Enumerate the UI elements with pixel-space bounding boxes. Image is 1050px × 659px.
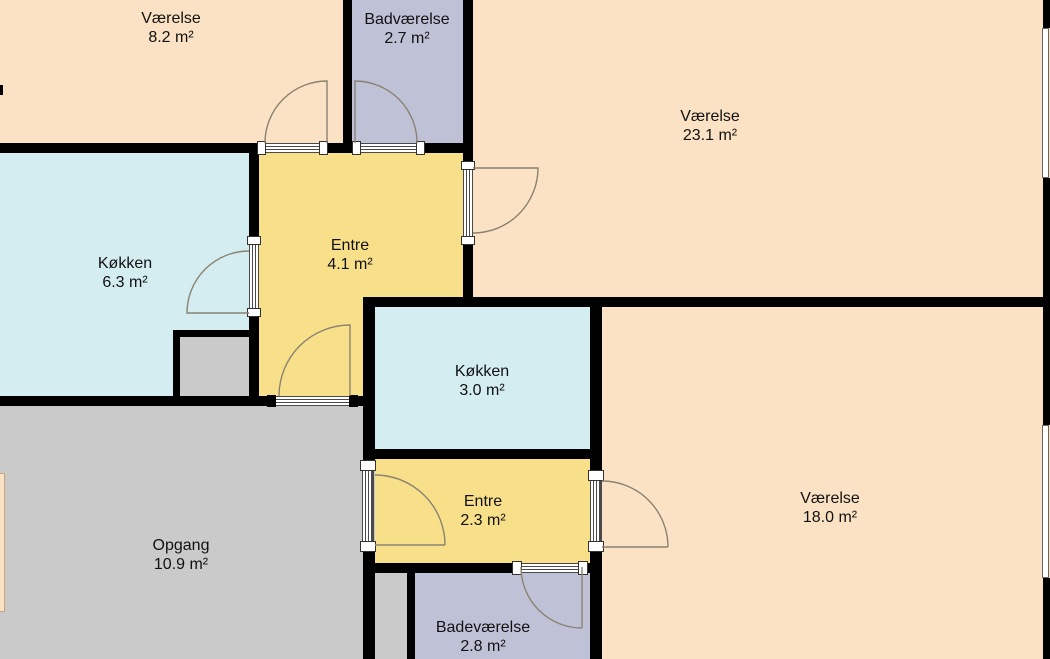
room-label-entre-4-1: Entre 4.1 m²: [327, 236, 372, 274]
door-jamb: [588, 470, 604, 481]
door-jamb: [578, 561, 588, 575]
window: [1042, 425, 1049, 578]
room-vaerelse-23-1: [463, 0, 1050, 307]
room-name: Badeværelse: [436, 618, 530, 637]
room-area: 3.0 m²: [455, 381, 509, 400]
door-jamb: [352, 141, 361, 155]
wall: [590, 550, 602, 659]
door-jamb: [247, 308, 261, 317]
room-label-entre-2-3: Entre 2.3 m²: [460, 492, 505, 530]
room-name: Entre: [460, 492, 505, 511]
room-area: 23.1 m²: [680, 126, 740, 145]
wall: [1043, 578, 1050, 659]
door-threshold: [590, 472, 602, 550]
room-area: 6.3 m²: [98, 273, 152, 292]
room-name: Værelse: [141, 9, 201, 28]
wall: [590, 297, 602, 472]
wall: [1043, 0, 1050, 28]
wall: [249, 143, 259, 238]
room-opgang: [0, 396, 375, 659]
wall: [407, 573, 415, 659]
door-threshold: [249, 238, 259, 315]
door-threshold: [258, 143, 327, 153]
door-jamb: [247, 236, 261, 245]
room-entre-4-1-lower: [249, 297, 375, 406]
room-label-vaerelse-8-2: Værelse 8.2 m²: [141, 9, 201, 47]
room-name: Køkken: [98, 254, 152, 273]
wall: [363, 563, 515, 573]
door-threshold: [362, 462, 374, 550]
room-area: 10.9 m²: [153, 555, 210, 574]
door-jamb: [360, 541, 376, 552]
room-opgang-stub: [173, 330, 259, 406]
room-label-koekken-6-3: Køkken 6.3 m²: [98, 254, 152, 292]
door-jamb: [360, 460, 376, 471]
door-jamb: [267, 395, 276, 407]
room-vaerelse-18-0: [590, 297, 1050, 659]
room-label-koekken-3-0: Køkken 3.0 m²: [455, 362, 509, 400]
wall: [249, 315, 259, 406]
wall: [363, 297, 1050, 307]
wall: [363, 297, 375, 462]
door-threshold: [353, 143, 424, 153]
door-jamb: [588, 541, 604, 552]
wall: [363, 449, 602, 459]
wall: [463, 0, 473, 163]
room-name: Værelse: [800, 489, 860, 508]
wall: [0, 143, 258, 153]
room-name: Badværelse: [364, 10, 449, 29]
door-jamb: [349, 395, 358, 407]
door-jamb: [512, 561, 522, 575]
door-threshold: [515, 563, 585, 573]
room-area: 8.2 m²: [141, 28, 201, 47]
floor-plan: Værelse 8.2 m² Badværelse 2.7 m² Værelse…: [0, 0, 1050, 659]
room-area: 2.8 m²: [436, 637, 530, 656]
room-entre-4-1: [249, 143, 472, 307]
room-name: Entre: [327, 236, 372, 255]
room-label-opgang: Opgang 10.9 m²: [153, 536, 210, 574]
room-name: Køkken: [455, 362, 509, 381]
room-label-badevaerelse-2-8: Badeværelse 2.8 m²: [436, 618, 530, 656]
wall: [173, 330, 259, 337]
room-label-vaerelse-18-0: Værelse 18.0 m²: [800, 489, 860, 527]
door-jamb: [461, 161, 475, 170]
wall: [0, 85, 3, 95]
door-threshold: [275, 396, 350, 406]
room-area: 18.0 m²: [800, 508, 860, 527]
door-jamb: [257, 141, 266, 155]
door-jamb: [319, 141, 328, 155]
edge-cutoff-strip: [0, 473, 5, 612]
room-name: Værelse: [680, 107, 740, 126]
door-jamb: [461, 236, 475, 245]
wall: [173, 330, 180, 406]
room-label-badvaerelse-2-7: Badværelse 2.7 m²: [364, 10, 449, 48]
door-jamb: [416, 141, 425, 155]
door-threshold: [463, 163, 473, 243]
wall: [343, 0, 352, 153]
window: [1042, 28, 1049, 178]
room-label-vaerelse-23-1: Værelse 23.1 m²: [680, 107, 740, 145]
room-area: 2.7 m²: [364, 29, 449, 48]
room-area: 4.1 m²: [327, 255, 372, 274]
room-area: 2.3 m²: [460, 511, 505, 530]
wall: [1043, 178, 1050, 425]
room-name: Opgang: [153, 536, 210, 555]
wall: [0, 396, 267, 406]
